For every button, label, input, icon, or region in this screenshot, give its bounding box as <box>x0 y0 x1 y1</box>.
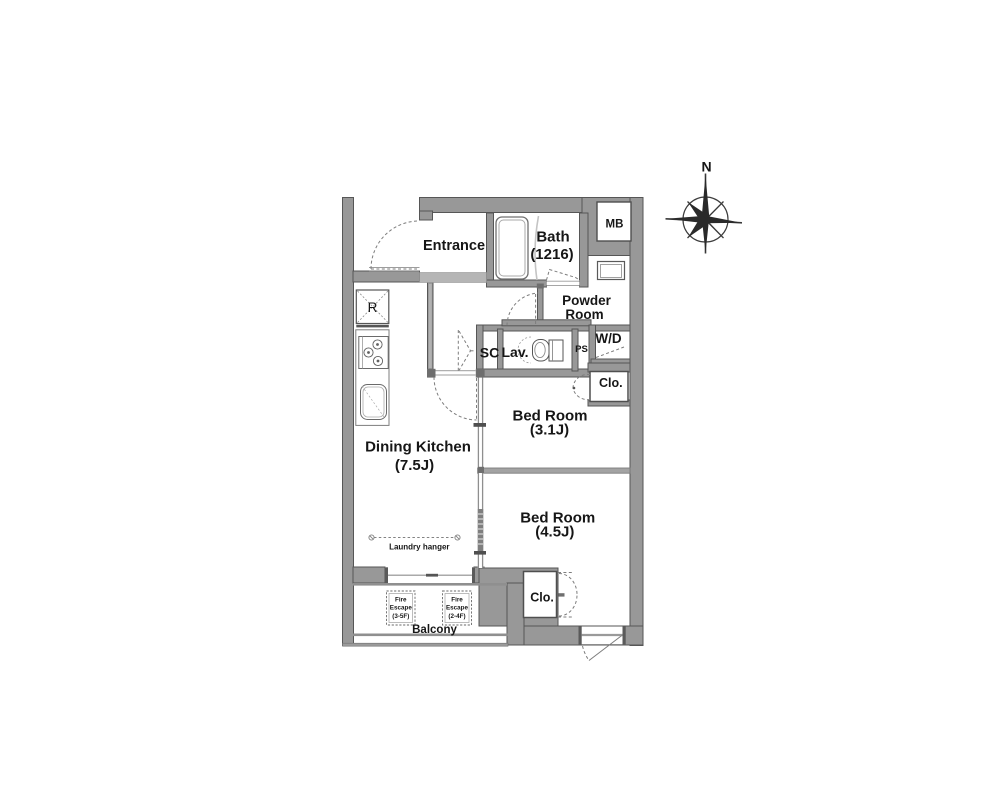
svg-text:Fire: Fire <box>451 597 463 604</box>
svg-text:N: N <box>701 159 711 175</box>
svg-text:Laundry hanger: Laundry hanger <box>389 543 449 552</box>
svg-text:SC: SC <box>480 345 499 361</box>
svg-text:Entrance: Entrance <box>423 238 485 254</box>
svg-text:(3-5F): (3-5F) <box>392 613 409 620</box>
svg-text:MB: MB <box>606 219 624 231</box>
svg-text:Fire: Fire <box>395 597 407 604</box>
svg-text:(7.5J): (7.5J) <box>395 457 434 474</box>
svg-text:Dining Kitchen: Dining Kitchen <box>365 439 471 456</box>
svg-text:(1216): (1216) <box>530 246 573 263</box>
svg-text:W/D: W/D <box>595 331 621 346</box>
svg-text:Escape: Escape <box>446 605 469 612</box>
svg-text:(3.1J): (3.1J) <box>530 422 569 439</box>
svg-text:Balcony: Balcony <box>412 624 457 636</box>
svg-text:(4.5J): (4.5J) <box>535 524 574 541</box>
svg-text:Powder: Powder <box>562 293 612 308</box>
svg-text:Escape: Escape <box>390 605 413 612</box>
svg-text:Clo.: Clo. <box>530 591 554 605</box>
svg-text:Room: Room <box>565 307 603 322</box>
svg-text:(2-4F): (2-4F) <box>448 613 465 620</box>
svg-text:Clo.: Clo. <box>599 376 623 390</box>
svg-text:PS: PS <box>575 344 588 355</box>
svg-text:Bath: Bath <box>536 229 569 246</box>
svg-text:Lav.: Lav. <box>502 344 529 360</box>
svg-text:R: R <box>368 300 378 315</box>
